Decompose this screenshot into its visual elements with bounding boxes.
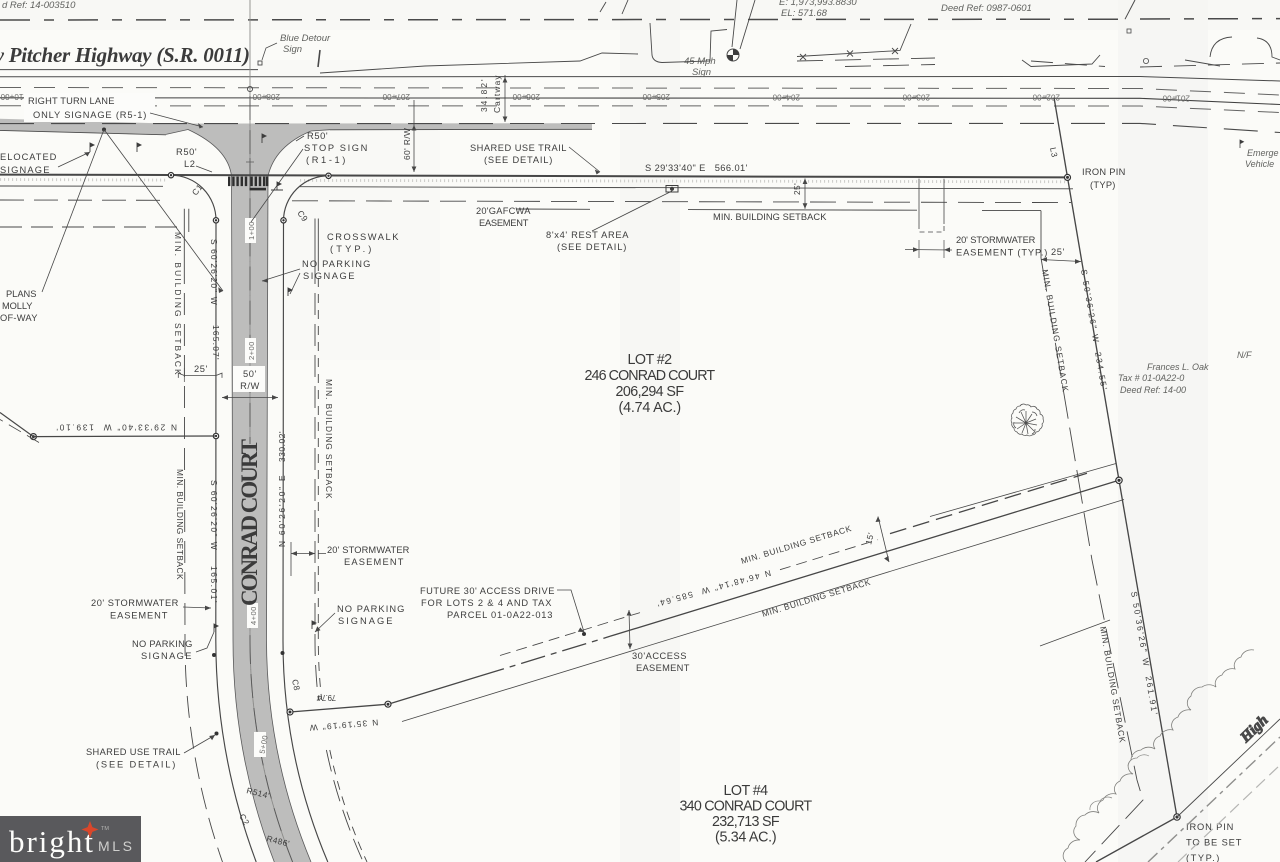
svg-text:N/F: N/F: [1237, 350, 1252, 360]
svg-text:S 29'33'40" E 566.01': S 29'33'40" E 566.01': [645, 163, 748, 173]
svg-text:60' R/W: 60' R/W: [402, 128, 412, 160]
svg-text:IRON PIN: IRON PIN: [1186, 822, 1234, 832]
svg-text:20' STORMWATER: 20' STORMWATER: [91, 598, 179, 608]
svg-text:2+00: 2+00: [247, 341, 256, 360]
svg-text:SHARED USE TRAIL: SHARED USE TRAIL: [470, 143, 567, 153]
svg-text:(SEE DETAIL): (SEE DETAIL): [557, 242, 627, 252]
svg-text:(5.34 AC.): (5.34 AC.): [715, 830, 777, 846]
svg-text:CONRAD COURT: CONRAD COURT: [237, 439, 262, 606]
svg-text:EASEMENT: EASEMENT: [636, 663, 690, 673]
svg-text:N 29'33'40" W 139.10': N 29'33'40" W 139.10': [56, 423, 177, 433]
svg-text:SIGNAGE: SIGNAGE: [141, 651, 192, 661]
svg-text:Blue Detour: Blue Detour: [280, 33, 331, 44]
svg-text:d Ref: 14-003510: d Ref: 14-003510: [2, 0, 76, 11]
svg-text:ELOCATED: ELOCATED: [0, 152, 57, 162]
svg-text:LOT #4: LOT #4: [724, 783, 769, 799]
svg-text:NO PARKING: NO PARKING: [337, 604, 405, 614]
svg-text:EASEMENT: EASEMENT: [479, 218, 529, 228]
svg-text:Vehicle: Vehicle: [1245, 159, 1274, 169]
svg-text:PLANS: PLANS: [6, 289, 37, 299]
svg-text:Frances L. Oak: Frances L. Oak: [1147, 362, 1209, 372]
svg-text:(TYP.): (TYP.): [1186, 853, 1220, 862]
svg-text:79.74': 79.74': [316, 693, 336, 702]
svg-text:20'GAFCWA: 20'GAFCWA: [476, 206, 531, 216]
svg-text:R50': R50': [307, 131, 328, 141]
svg-text:L3: L3: [1048, 146, 1060, 158]
svg-text:CROSSWALK: CROSSWALK: [327, 232, 399, 242]
svg-text:E: 1,973,993.8830: E: 1,973,993.8830: [779, 0, 857, 8]
svg-text:201+00: 201+00: [1162, 94, 1190, 103]
svg-text:207+00: 207+00: [382, 92, 410, 101]
svg-text:25': 25': [792, 183, 802, 195]
svg-text:Sign: Sign: [283, 44, 302, 55]
svg-text:MIN. BUILDING SETBACK: MIN. BUILDING SETBACK: [173, 232, 183, 375]
svg-text:R50': R50': [176, 147, 197, 157]
svg-text:SIGNAGE: SIGNAGE: [303, 271, 355, 281]
svg-text:Emerge: Emerge: [1247, 148, 1279, 158]
svg-text:TM: TM: [101, 826, 109, 832]
svg-text:NO PARKING: NO PARKING: [132, 639, 193, 649]
svg-text:Deed Ref: 0987-0601: Deed Ref: 0987-0601: [941, 3, 1032, 14]
svg-text:30'ACCESS: 30'ACCESS: [632, 651, 687, 661]
svg-text:STOP SIGN: STOP SIGN: [304, 143, 368, 153]
svg-text:EL: 571.68: EL: 571.68: [781, 8, 828, 19]
svg-text:SIGNAGE: SIGNAGE: [0, 165, 50, 175]
svg-text:(4.74 AC.): (4.74 AC.): [619, 400, 682, 416]
svg-text:MIN. BUILDING SETBACK: MIN. BUILDING SETBACK: [324, 379, 334, 499]
svg-text:OF-WAY: OF-WAY: [0, 313, 38, 323]
svg-text:S 60'26'20" W: S 60'26'20" W: [209, 239, 219, 305]
svg-text:bright: bright: [9, 824, 93, 859]
svg-text:165.01': 165.01': [209, 566, 219, 603]
svg-text:SHARED USE TRAIL: SHARED USE TRAIL: [86, 747, 181, 757]
svg-text:208+00: 208+00: [252, 92, 280, 101]
svg-text:25': 25': [194, 364, 208, 374]
svg-text:Tax # 01-0A22-0: Tax # 01-0A22-0: [1118, 373, 1184, 383]
svg-text:330.02': 330.02': [277, 431, 287, 462]
svg-text:(SEE DETAIL): (SEE DETAIL): [484, 155, 553, 165]
svg-text:206+00: 206+00: [512, 92, 540, 101]
svg-text:PARCEL 01-0A22-013: PARCEL 01-0A22-013: [447, 610, 553, 620]
svg-text:1+00: 1+00: [247, 221, 256, 240]
svg-text:FOR LOTS 2 & 4 AND TAX: FOR LOTS 2 & 4 AND TAX: [421, 598, 552, 608]
svg-text:8'x4' REST AREA: 8'x4' REST AREA: [546, 230, 629, 240]
svg-text:(R1-1): (R1-1): [306, 155, 346, 165]
svg-text:204+00: 204+00: [772, 92, 800, 101]
svg-text:NO PARKING: NO PARKING: [302, 259, 371, 269]
svg-text:MIN. BUILDING SETBACK: MIN. BUILDING SETBACK: [175, 469, 185, 580]
svg-text:EASEMENT: EASEMENT: [344, 557, 404, 567]
svg-text:L2: L2: [184, 159, 196, 169]
svg-text:340 CONRAD COURT: 340 CONRAD COURT: [680, 799, 813, 815]
svg-text:205+00: 205+00: [642, 92, 670, 101]
svg-text:FUTURE 30' ACCESS DRIVE: FUTURE 30' ACCESS DRIVE: [420, 586, 555, 596]
svg-text:LOT #2: LOT #2: [628, 352, 673, 368]
svg-text:202+00: 202+00: [1032, 92, 1060, 101]
svg-text:EASEMENT (TYP.): EASEMENT (TYP.): [956, 248, 1048, 258]
svg-text:Deed Ref: 14-00: Deed Ref: 14-00: [1120, 385, 1186, 395]
svg-text:(TYP): (TYP): [1090, 180, 1116, 190]
svg-text:SIGNAGE: SIGNAGE: [338, 616, 393, 626]
svg-text:Sign: Sign: [692, 67, 711, 78]
svg-text:MIN. BUILDING SETBACK: MIN. BUILDING SETBACK: [713, 212, 827, 222]
svg-text:203+00: 203+00: [902, 92, 930, 101]
svg-text:206,294 SF: 206,294 SF: [616, 384, 685, 400]
svg-text:ONLY SIGNAGE (R5-1): ONLY SIGNAGE (R5-1): [33, 110, 147, 120]
svg-text:4+00: 4+00: [249, 606, 258, 625]
svg-text:20' STORMWATER: 20' STORMWATER: [956, 235, 1036, 245]
svg-text:246 CONRAD COURT: 246 CONRAD COURT: [585, 368, 716, 384]
svg-text:50': 50': [243, 369, 257, 379]
svg-text:(TYP.): (TYP.): [330, 244, 372, 254]
svg-text:w Pitcher Highway (S.R. 0011): w Pitcher Highway (S.R. 0011): [0, 43, 250, 67]
svg-text:232,713 SF: 232,713 SF: [712, 814, 780, 830]
svg-text:RIGHT TURN LANE: RIGHT TURN LANE: [28, 96, 115, 106]
svg-text:25': 25': [1051, 247, 1065, 257]
svg-text:MLS: MLS: [98, 838, 135, 854]
svg-text:S 60'26'20" W: S 60'26'20" W: [209, 480, 219, 550]
svg-text:210+00: 210+00: [0, 92, 28, 101]
svg-text:IRON PIN: IRON PIN: [1082, 167, 1126, 177]
svg-text:EASEMENT: EASEMENT: [110, 611, 168, 621]
svg-text:R/W: R/W: [240, 381, 260, 391]
svg-text:Cartway: Cartway: [492, 75, 502, 113]
svg-text:165.07': 165.07': [211, 325, 221, 360]
svg-text:20' STORMWATER: 20' STORMWATER: [327, 545, 410, 555]
svg-text:MOLLY: MOLLY: [2, 301, 33, 311]
svg-text:(SEE DETAIL): (SEE DETAIL): [96, 760, 176, 770]
